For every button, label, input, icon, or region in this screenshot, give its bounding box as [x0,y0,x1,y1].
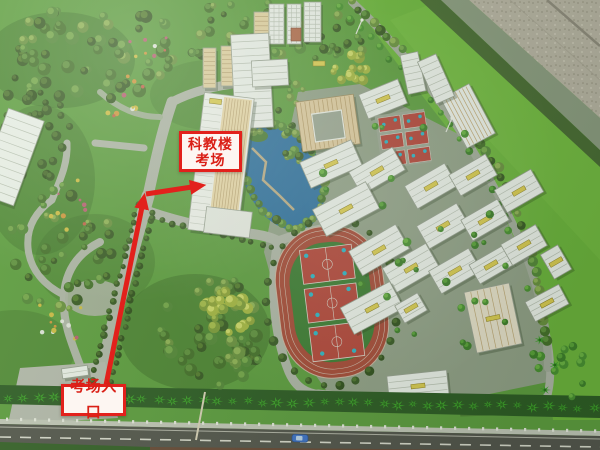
campus-model-photo: 科教楼 考场 考场入口 [0,0,600,450]
exam-entrance-label-text: 考场入口 [64,374,123,426]
exam-building-label-line1: 科教楼 [188,136,233,152]
exam-building-label-line2: 考场 [196,152,226,168]
exam-building-label: 科教楼 考场 [179,131,242,172]
exam-entrance-label: 考场入口 [61,384,126,416]
